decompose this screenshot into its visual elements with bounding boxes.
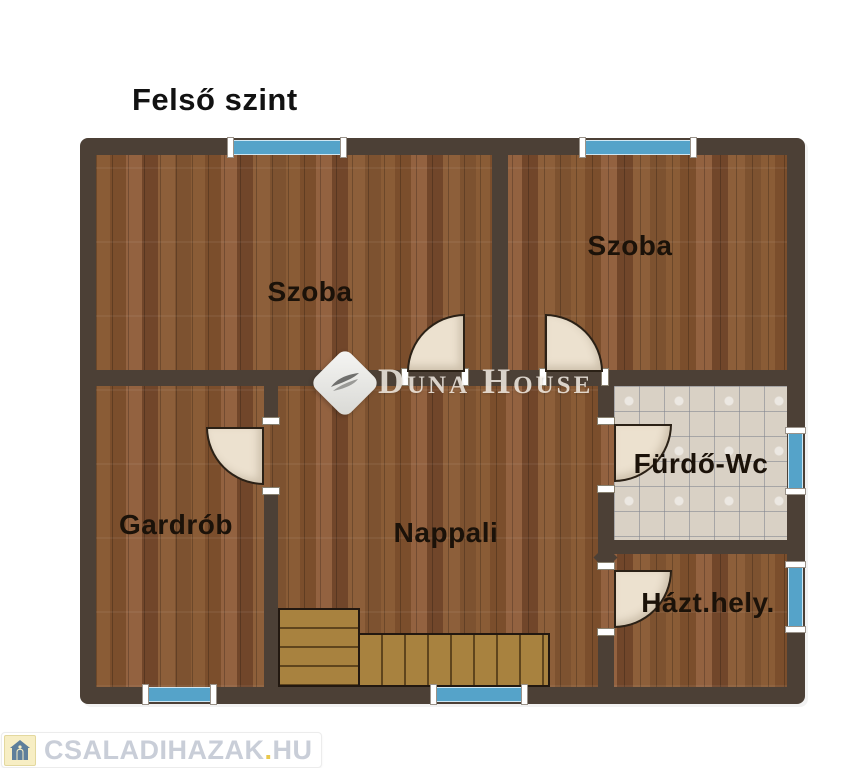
- room-label-nappali: Nappali: [394, 517, 499, 549]
- window-jamb: [579, 137, 586, 158]
- wall-bathroom-bottom: [598, 540, 787, 554]
- window-jamb: [785, 488, 806, 495]
- house-icon: [4, 735, 36, 766]
- window-jamb: [785, 561, 806, 568]
- room-label-szoba-left: Szoba: [268, 276, 353, 308]
- wall-gardrob-lower: [264, 490, 278, 687]
- wall-between-bedrooms: [492, 155, 508, 372]
- window-jamb: [785, 626, 806, 633]
- door-jamb: [597, 562, 615, 570]
- window-jamb: [690, 137, 697, 158]
- window-hazthely: [788, 566, 803, 628]
- room-label-hazt-hely: Házt.hely.: [641, 587, 775, 619]
- stairs-lower-flight: [358, 633, 550, 687]
- page-title: Felső szint: [132, 82, 298, 118]
- door-jamb: [262, 417, 280, 425]
- window-jamb: [785, 427, 806, 434]
- window-szoba-left: [232, 140, 342, 155]
- wall-right-section-lower: [598, 630, 614, 687]
- stairs-upper-flight: [278, 608, 360, 687]
- door-jamb: [597, 485, 615, 493]
- window-nappali: [435, 687, 523, 702]
- room-label-szoba-right: Szoba: [588, 230, 673, 262]
- window-jamb: [227, 137, 234, 158]
- floor-plan: Szoba Szoba Gardrób Nappali Fürdő-Wc Ház…: [80, 138, 805, 704]
- window-jamb: [340, 137, 347, 158]
- window-gardrob: [147, 687, 212, 702]
- door-jamb: [262, 487, 280, 495]
- window-jamb: [430, 684, 437, 705]
- window-jamb: [142, 684, 149, 705]
- duna-house-watermark-text: Duna House: [378, 360, 593, 402]
- door-jamb: [597, 628, 615, 636]
- window-szoba-right: [584, 140, 692, 155]
- domain-dot: .: [264, 735, 272, 765]
- room-label-gardrob: Gardrób: [119, 509, 233, 541]
- site-name-text: CSALADIHAZAK.HU: [44, 735, 313, 766]
- site-logo: CSALADIHAZAK.HU: [1, 732, 322, 768]
- window-jamb: [521, 684, 528, 705]
- window-furdo: [788, 432, 803, 490]
- window-jamb: [210, 684, 217, 705]
- room-label-furdo-wc: Fürdő-Wc: [634, 448, 769, 480]
- door-jamb: [597, 417, 615, 425]
